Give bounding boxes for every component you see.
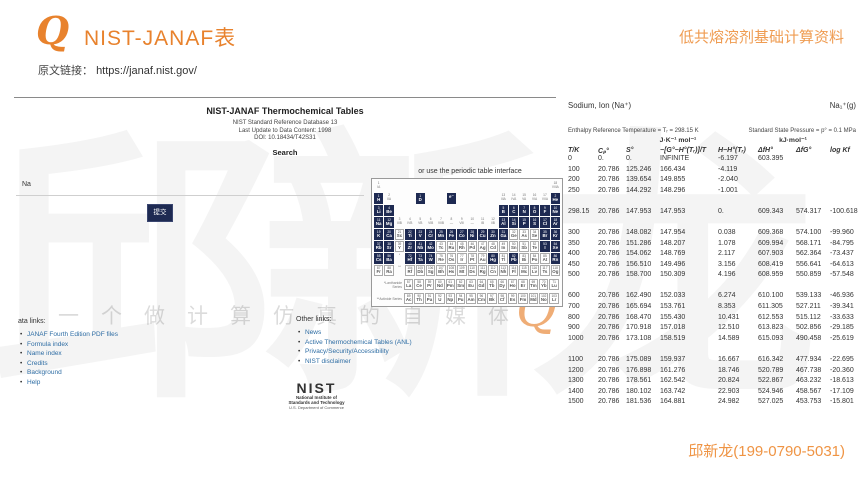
- janaf-row-1400: 140020.786180.102163.74222.903524.946458…: [568, 388, 856, 399]
- pt-element-Cd: 48Cd: [488, 241, 497, 252]
- janaf-row-700: 70020.786165.694153.7618.353611.305527.2…: [568, 303, 856, 314]
- janaf-cell: 148.207: [660, 240, 718, 251]
- conditions-row: Enthalpy Reference Temperature = Tᵣ = 29…: [568, 128, 856, 134]
- other-links-section: Other links: NewsActive Thermochemical T…: [296, 316, 412, 366]
- pt-element-Sn: 50Sn: [509, 241, 518, 252]
- janaf-cell: 20.786: [598, 398, 626, 409]
- janaf-cell: 159.937: [660, 356, 718, 367]
- janaf-cell: 139.654: [626, 176, 660, 187]
- janaf-column-header: H−H°(Tᵣ): [718, 147, 758, 155]
- nist-logo-line3: U.S. Department of Commerce: [269, 405, 364, 410]
- pt-group-label: **: [395, 265, 404, 276]
- slide: 邱新龙 一个做计算仿真的自媒体 Q Q NIST-JANAF表 低共熔溶剂基础计…: [0, 0, 860, 484]
- janaf-column-header: log Kf: [830, 147, 856, 155]
- janaf-cell: 568.171: [796, 240, 830, 251]
- janaf-cell: 608.959: [758, 271, 796, 282]
- janaf-cell: -22.695: [830, 356, 856, 367]
- janaf-cell: 300: [568, 229, 598, 240]
- units-jk-mol: J·K⁻¹ mol⁻¹: [623, 136, 733, 144]
- pt-element-Sg: 106Sg: [426, 265, 435, 276]
- janaf-cell: 522.867: [758, 377, 796, 388]
- janaf-cell: 20.786: [598, 229, 626, 240]
- pt-element-Yb: 70Yb: [539, 279, 548, 290]
- pt-element-Cr[interactable]: 24Cr: [426, 229, 435, 240]
- janaf-cell: 1400: [568, 388, 598, 399]
- pt-element-Np: 93Np: [446, 293, 455, 304]
- q-logo-icon: Q: [36, 8, 69, 53]
- submit-button[interactable]: 提交: [147, 204, 173, 222]
- link-item[interactable]: Help: [18, 378, 118, 388]
- janaf-cell: 458.567: [796, 388, 830, 399]
- janaf-cell: 539.133: [796, 292, 830, 303]
- janaf-cell: 150.309: [660, 271, 718, 282]
- pt-element-B[interactable]: 5B: [499, 205, 508, 216]
- pt-element-K[interactable]: 19K: [374, 229, 383, 240]
- link-item[interactable]: JANAF Fourth Edition PDF files: [18, 330, 118, 340]
- janaf-cell: 144.292: [626, 187, 660, 198]
- pt-group-label: 10—: [468, 217, 477, 228]
- janaf-row-1300: 130020.786178.561162.54220.824522.867463…: [568, 377, 856, 388]
- janaf-cell: 181.536: [626, 398, 660, 409]
- janaf-cell: 158.700: [626, 271, 660, 282]
- pt-element-Au: 79Au: [478, 253, 487, 264]
- janaf-column-header: ΔfG°: [796, 147, 830, 155]
- janaf-cell: 20.786: [598, 208, 626, 219]
- janaf-cell: 180.102: [626, 388, 660, 399]
- janaf-cell: 0.: [626, 155, 660, 166]
- pt-element-Pt: 78Pt: [468, 253, 477, 264]
- janaf-cell: [796, 187, 830, 198]
- janaf-cell: 24.982: [718, 398, 758, 409]
- janaf-cell: 20.786: [598, 324, 626, 335]
- pt-group-label: *: [395, 253, 404, 264]
- janaf-cell: -15.801: [830, 398, 856, 409]
- janaf-cell: 163.742: [660, 388, 718, 399]
- pt-element-Y: 39Y: [395, 241, 404, 252]
- janaf-cell: 0.: [598, 155, 626, 166]
- janaf-cell: 173.108: [626, 335, 660, 346]
- pt-element-Re: 75Re: [436, 253, 445, 264]
- pt-element-Ir: 77Ir: [457, 253, 466, 264]
- pt-element-Ra: 88Ra: [384, 265, 393, 276]
- data-links-heading: ata links:: [18, 318, 118, 325]
- janaf-cell: -100.618: [830, 208, 856, 219]
- pt-element-At: 85At: [540, 253, 549, 264]
- pt-element-Pd: 46Pd: [468, 241, 477, 252]
- pt-element-Li[interactable]: 3Li: [374, 205, 383, 216]
- janaf-cell: [830, 155, 856, 166]
- janaf-cell: 615.093: [758, 335, 796, 346]
- janaf-cell: 2.117: [718, 250, 758, 261]
- janaf-cell: 155.430: [660, 314, 718, 325]
- pt-group-label: 9VIII: [457, 217, 466, 228]
- pt-element-Lu: 71Lu: [549, 279, 558, 290]
- pt-group-label: 14IVA: [509, 193, 518, 204]
- janaf-cell: 20.786: [598, 261, 626, 272]
- janaf-cell: 611.305: [758, 303, 796, 314]
- other-links-list: NewsActive Thermochemical Tables (ANL)Pr…: [296, 328, 412, 366]
- pt-element-Ga[interactable]: 31Ga: [499, 229, 508, 240]
- pt-group-label: 16VIA: [530, 193, 539, 204]
- janaf-cell: 149.855: [660, 176, 718, 187]
- pt-element-As: 33As: [519, 229, 528, 240]
- pt-element-Si[interactable]: 14Si: [509, 217, 518, 228]
- pt-element-Og: 118Og: [551, 265, 560, 276]
- janaf-cell: 900: [568, 324, 598, 335]
- pt-element-Rb[interactable]: 37Rb: [374, 241, 383, 252]
- pt-element-e⁻[interactable]: e⁻: [447, 193, 456, 204]
- janaf-cell: 147.953: [660, 208, 718, 219]
- units-row: J·K⁻¹ mol⁻¹ kJ·mol⁻¹: [568, 136, 856, 146]
- pt-element-Co[interactable]: 27Co: [457, 229, 466, 240]
- pt-element-Cs[interactable]: 55Cs: [374, 253, 383, 264]
- actinide-series-label: **Actinide Series: [374, 297, 404, 301]
- pt-element-Po: 84Po: [530, 253, 539, 264]
- pt-element-Na[interactable]: 11Na: [374, 217, 383, 228]
- pt-element-Be[interactable]: 4Be: [384, 205, 393, 216]
- janaf-cell: 6.274: [718, 292, 758, 303]
- pt-element-Ca[interactable]: 20Ca: [384, 229, 393, 240]
- pt-element-Te: 52Te: [530, 241, 539, 252]
- janaf-cell: 100: [568, 166, 598, 177]
- janaf-column-header: Cₚ°: [598, 147, 626, 155]
- page-title: NIST-JANAF表: [84, 22, 236, 52]
- pt-element-Ti[interactable]: 22Ti: [405, 229, 414, 240]
- data-links-list: JANAF Fourth Edition PDF filesFormula in…: [18, 330, 118, 387]
- search-input[interactable]: [16, 180, 364, 196]
- janaf-cell: [830, 176, 856, 187]
- source-link-line: 原文链接： https://janaf.nist.gov/: [38, 62, 197, 78]
- lanthanide-series-label: *Lanthanide Series: [374, 281, 404, 289]
- pt-element-Ni[interactable]: 28Ni: [468, 229, 477, 240]
- janaf-cell: -20.360: [830, 367, 856, 378]
- pt-element-Md: 101Md: [529, 293, 538, 304]
- janaf-cell: -33.633: [830, 314, 856, 325]
- janaf-row-298.15: 298.1520.786147.953147.9530.609.343574.3…: [568, 208, 856, 219]
- janaf-cell: [758, 166, 796, 177]
- pt-element-Ds: 110Ds: [468, 265, 477, 276]
- pt-element-Zn[interactable]: 30Zn: [488, 229, 497, 240]
- site-subtitle-line2: Last Update to Data Content: 1998: [14, 128, 556, 136]
- pt-element-Ne[interactable]: 10Ne: [551, 205, 560, 216]
- janaf-column-header: T/K: [568, 147, 598, 155]
- pt-element-F[interactable]: 9F: [540, 205, 549, 216]
- pt-element-Ts: 117Ts: [540, 265, 549, 276]
- pt-element-Cl[interactable]: 17Cl: [540, 217, 549, 228]
- pt-element-Fl: 114Fl: [509, 265, 518, 276]
- pt-element-La: 57La: [404, 279, 413, 290]
- janaf-cell: 562.364: [796, 250, 830, 261]
- janaf-cell: [758, 176, 796, 187]
- janaf-cell: 700: [568, 303, 598, 314]
- pt-group-label: 15VA: [519, 193, 528, 204]
- pt-element-Pm: 61Pm: [446, 279, 455, 290]
- pt-element-Bh: 107Bh: [436, 265, 445, 276]
- janaf-column-header: S°: [626, 147, 660, 155]
- pt-element-Tm: 69Tm: [529, 279, 538, 290]
- pt-element-C[interactable]: 6C: [509, 205, 518, 216]
- janaf-cell: 20.786: [598, 176, 626, 187]
- pt-element-Pr: 59Pr: [425, 279, 434, 290]
- janaf-cell: 20.786: [598, 388, 626, 399]
- janaf-cell: 574.317: [796, 208, 830, 219]
- link-item[interactable]: NIST disclaimer: [296, 357, 412, 367]
- janaf-cell: 20.786: [598, 250, 626, 261]
- site-title: NIST-JANAF Thermochemical Tables: [14, 106, 556, 116]
- pt-element-W[interactable]: 74W: [426, 253, 435, 264]
- janaf-cell: -73.437: [830, 250, 856, 261]
- janaf-cell: 162.490: [626, 292, 660, 303]
- janaf-cell: 1500: [568, 398, 598, 409]
- pt-element-Ba[interactable]: 56Ba: [384, 253, 393, 264]
- pt-group-label: 13IIIA: [499, 193, 508, 204]
- pt-element-Gd: 64Gd: [477, 279, 486, 290]
- pt-element-Os: 76Os: [447, 253, 456, 264]
- janaf-cell: 467.738: [796, 367, 830, 378]
- janaf-cell: 162.542: [660, 377, 718, 388]
- periodic-table-hint: or use the periodic table interface: [370, 168, 570, 175]
- pt-element-Nd: 60Nd: [435, 279, 444, 290]
- nist-logo: NIST National Institute of Standards and…: [269, 382, 364, 410]
- janaf-cell: 164.881: [660, 398, 718, 409]
- janaf-cell: [758, 187, 796, 198]
- pt-element-Fr: 87Fr: [374, 265, 383, 276]
- pt-element-H[interactable]: 1H: [374, 193, 383, 204]
- link-item[interactable]: Privacy/Security/Accessibility: [296, 347, 412, 357]
- janaf-cell: 1000: [568, 335, 598, 346]
- janaf-table-body: 00.0.INFINITE-6.197603.39510020.786125.2…: [568, 155, 856, 409]
- janaf-cell: 800: [568, 314, 598, 325]
- pt-element-Ac: 89Ac: [404, 293, 413, 304]
- janaf-cell: 527.025: [758, 398, 796, 409]
- janaf-cell: 490.458: [796, 335, 830, 346]
- janaf-cell: 20.824: [718, 377, 758, 388]
- janaf-cell: 550.859: [796, 271, 830, 282]
- janaf-cell: 22.903: [718, 388, 758, 399]
- janaf-cell: 165.694: [626, 303, 660, 314]
- janaf-cell: [796, 155, 830, 166]
- pt-element-Tc: 43Tc: [436, 241, 445, 252]
- janaf-cell: 147.953: [626, 208, 660, 219]
- pt-element-Mo[interactable]: 42Mo: [426, 241, 435, 252]
- janaf-cell: -46.936: [830, 292, 856, 303]
- pt-element-Cf: 98Cf: [498, 293, 507, 304]
- janaf-row-1500: 150020.786181.536164.88124.982527.025453…: [568, 398, 856, 409]
- janaf-cell: -1.001: [718, 187, 758, 198]
- pt-element-Al[interactable]: 13Al: [499, 217, 508, 228]
- site-subtitle: NIST Standard Reference Database 13 Last…: [14, 120, 556, 143]
- pt-element-Bk: 97Bk: [487, 293, 496, 304]
- janaf-row-1200: 120020.786176.898161.27618.746520.789467…: [568, 367, 856, 378]
- janaf-cell: 10.431: [718, 314, 758, 325]
- pt-group-label: 4IVB: [405, 217, 414, 228]
- pt-element-U: 92U: [435, 293, 444, 304]
- janaf-cell: 0: [568, 155, 598, 166]
- janaf-cell: -99.960: [830, 229, 856, 240]
- pt-element-No: 102No: [539, 293, 548, 304]
- pt-group-label: 11IB: [478, 217, 487, 228]
- janaf-cell: -17.109: [830, 388, 856, 399]
- pt-element-Bi: 83Bi: [519, 253, 528, 264]
- pt-element-Ar[interactable]: 18Ar: [551, 217, 560, 228]
- janaf-cell: 20.786: [598, 314, 626, 325]
- janaf-cell: 609.368: [758, 229, 796, 240]
- pt-element-Hg[interactable]: 80Hg: [488, 253, 497, 264]
- link-item[interactable]: Active Thermochemical Tables (ANL): [296, 338, 412, 348]
- janaf-column-headers: T/KCₚ°S°−[G°−H°(Tᵣ)]/TH−H°(Tᵣ)ΔfH°ΔfG°lo…: [568, 147, 856, 155]
- janaf-cell: 515.112: [796, 314, 830, 325]
- janaf-table-panel: Sodium, Ion (Na⁺) Na₁⁺(g) Enthalpy Refer…: [568, 97, 856, 409]
- enthalpy-reference-note: Enthalpy Reference Temperature = Tᵣ = 29…: [568, 128, 699, 134]
- source-link-label: 原文链接：: [38, 65, 93, 77]
- janaf-cell: 18.746: [718, 367, 758, 378]
- janaf-cell: 250: [568, 187, 598, 198]
- pt-element-Fm: 100Fm: [518, 293, 527, 304]
- pt-element-D[interactable]: 1D: [416, 193, 425, 204]
- source-link-url[interactable]: https://janaf.nist.gov/: [96, 65, 197, 77]
- pt-element-Rn[interactable]: 86Rn: [551, 253, 560, 264]
- janaf-cell: 527.211: [796, 303, 830, 314]
- pt-element-Eu: 63Eu: [466, 279, 475, 290]
- periodic-table: 1IA18VIIIA1H2IIA1De⁻13IIIA14IVA15VA16VIA…: [371, 178, 563, 307]
- janaf-cell: 20.786: [598, 367, 626, 378]
- pt-element-Cu[interactable]: 29Cu: [478, 229, 487, 240]
- janaf-row-500: 50020.786158.700150.3094.196608.959550.8…: [568, 271, 856, 282]
- link-item[interactable]: News: [296, 328, 412, 338]
- pt-element-Ta[interactable]: 73Ta: [416, 253, 425, 264]
- link-item[interactable]: Credits: [18, 359, 118, 369]
- janaf-column-header: ΔfH°: [758, 147, 796, 155]
- pt-element-Ru: 44Ru: [447, 241, 456, 252]
- pt-element-Tl: 81Tl: [499, 253, 508, 264]
- pt-element-Mn[interactable]: 25Mn: [436, 229, 445, 240]
- janaf-cell: [830, 166, 856, 177]
- janaf-cell: -2.040: [718, 176, 758, 187]
- janaf-cell: 609.994: [758, 240, 796, 251]
- janaf-cell: 154.062: [626, 250, 660, 261]
- species-name: Sodium, Ion (Na⁺): [568, 101, 631, 110]
- pt-element-Db: 105Db: [416, 265, 425, 276]
- pt-element-Hs: 108Hs: [447, 265, 456, 276]
- pt-element-Hf[interactable]: 72Hf: [405, 253, 414, 264]
- janaf-cell: 20.786: [598, 271, 626, 282]
- janaf-cell: -39.341: [830, 303, 856, 314]
- lanthanide-series-row: *Lanthanide Series 57La58Ce59Pr60Nd61Pm6…: [374, 279, 560, 290]
- pt-element-Tb: 65Tb: [487, 279, 496, 290]
- pt-element-Dy: 66Dy: [498, 279, 507, 290]
- janaf-cell: 158.519: [660, 335, 718, 346]
- janaf-cell: 148.296: [660, 187, 718, 198]
- janaf-cell: 152.033: [660, 292, 718, 303]
- link-item[interactable]: Name index: [18, 349, 118, 359]
- pt-group-label: 17VIIA: [540, 193, 549, 204]
- janaf-cell: 524.946: [758, 388, 796, 399]
- janaf-cell: 463.232: [796, 377, 830, 388]
- link-item[interactable]: Formula index: [18, 340, 118, 350]
- pt-element-Sb: 51Sb: [519, 241, 528, 252]
- janaf-cell: 600: [568, 292, 598, 303]
- janaf-cell: 166.434: [660, 166, 718, 177]
- janaf-cell: -84.795: [830, 240, 856, 251]
- pt-group-label: 8—: [447, 217, 456, 228]
- janaf-cell: -29.185: [830, 324, 856, 335]
- janaf-cell: -57.548: [830, 271, 856, 282]
- janaf-row-350: 35020.786151.286148.2071.078609.994568.1…: [568, 240, 856, 251]
- nist-wordmark: NIST: [269, 382, 364, 395]
- janaf-cell: 20.786: [598, 356, 626, 367]
- janaf-cell: 610.100: [758, 292, 796, 303]
- pt-element-Nh: 113Nh: [499, 265, 508, 276]
- janaf-cell: [830, 187, 856, 198]
- pt-element-V[interactable]: 23V: [416, 229, 425, 240]
- pt-element-Fe[interactable]: 26Fe: [447, 229, 456, 240]
- pt-element-In: 49In: [499, 241, 508, 252]
- janaf-row-900: 90020.786170.918157.01812.510613.823502.…: [568, 324, 856, 335]
- janaf-cell: 609.343: [758, 208, 796, 219]
- janaf-cell: 161.276: [660, 367, 718, 378]
- janaf-cell: 151.286: [626, 240, 660, 251]
- pt-element-Pb[interactable]: 82Pb: [509, 253, 518, 264]
- janaf-cell: 148.769: [660, 250, 718, 261]
- pt-element-He[interactable]: 2He: [551, 193, 560, 204]
- pt-element-Lv: 116Lv: [530, 265, 539, 276]
- pt-element-Cn: 112Cn: [488, 265, 497, 276]
- janaf-cell: 125.246: [626, 166, 660, 177]
- pt-element-Mc: 115Mc: [519, 265, 528, 276]
- janaf-column-header: −[G°−H°(Tᵣ)]/T: [660, 147, 718, 155]
- janaf-cell: 20.786: [598, 292, 626, 303]
- page-subtitle: 低共熔溶剂基础计算资料: [679, 26, 844, 47]
- pt-element-Sr[interactable]: 38Sr: [384, 241, 393, 252]
- janaf-cell: 200: [568, 176, 598, 187]
- janaf-cell: 176.898: [626, 367, 660, 378]
- janaf-cell: 520.789: [758, 367, 796, 378]
- janaf-cell: 607.903: [758, 250, 796, 261]
- janaf-cell: 149.496: [660, 261, 718, 272]
- footer-contact: 邱新龙(199-0790-5031): [688, 440, 845, 461]
- janaf-row-200: 20020.786139.654149.855-2.040: [568, 176, 856, 187]
- pt-group-label: 12IIB: [488, 217, 497, 228]
- janaf-cell: 1300: [568, 377, 598, 388]
- janaf-cell: 147.954: [660, 229, 718, 240]
- pt-element-Zr[interactable]: 40Zr: [405, 241, 414, 252]
- pt-element-Xe[interactable]: 54Xe: [551, 241, 560, 252]
- janaf-cell: 20.786: [598, 377, 626, 388]
- pt-element-Rh: 45Rh: [457, 241, 466, 252]
- pt-element-Er: 68Er: [518, 279, 527, 290]
- pt-element-Kr[interactable]: 36Kr: [551, 229, 560, 240]
- pt-element-I[interactable]: 53I: [540, 241, 549, 252]
- janaf-cell: 350: [568, 240, 598, 251]
- pt-element-Mg[interactable]: 12Mg: [384, 217, 393, 228]
- janaf-cell: 148.082: [626, 229, 660, 240]
- pt-element-Br[interactable]: 35Br: [540, 229, 549, 240]
- janaf-cell: 12.510: [718, 324, 758, 335]
- units-kj-mol: kJ·mol⁻¹: [753, 136, 833, 144]
- pt-element-N[interactable]: 7N: [519, 205, 528, 216]
- pt-element-Nb[interactable]: 41Nb: [416, 241, 425, 252]
- janaf-cell: 14.589: [718, 335, 758, 346]
- pt-element-P[interactable]: 15P: [519, 217, 528, 228]
- janaf-cell: -25.619: [830, 335, 856, 346]
- janaf-cell: 613.823: [758, 324, 796, 335]
- link-item[interactable]: Background: [18, 368, 118, 378]
- pt-element-O[interactable]: 8O: [530, 205, 539, 216]
- pt-element-Pa: 91Pa: [425, 293, 434, 304]
- site-subtitle-line1: NIST Standard Reference Database 13: [14, 120, 556, 128]
- janaf-cell: 4.196: [718, 271, 758, 282]
- pt-element-S[interactable]: 16S: [530, 217, 539, 228]
